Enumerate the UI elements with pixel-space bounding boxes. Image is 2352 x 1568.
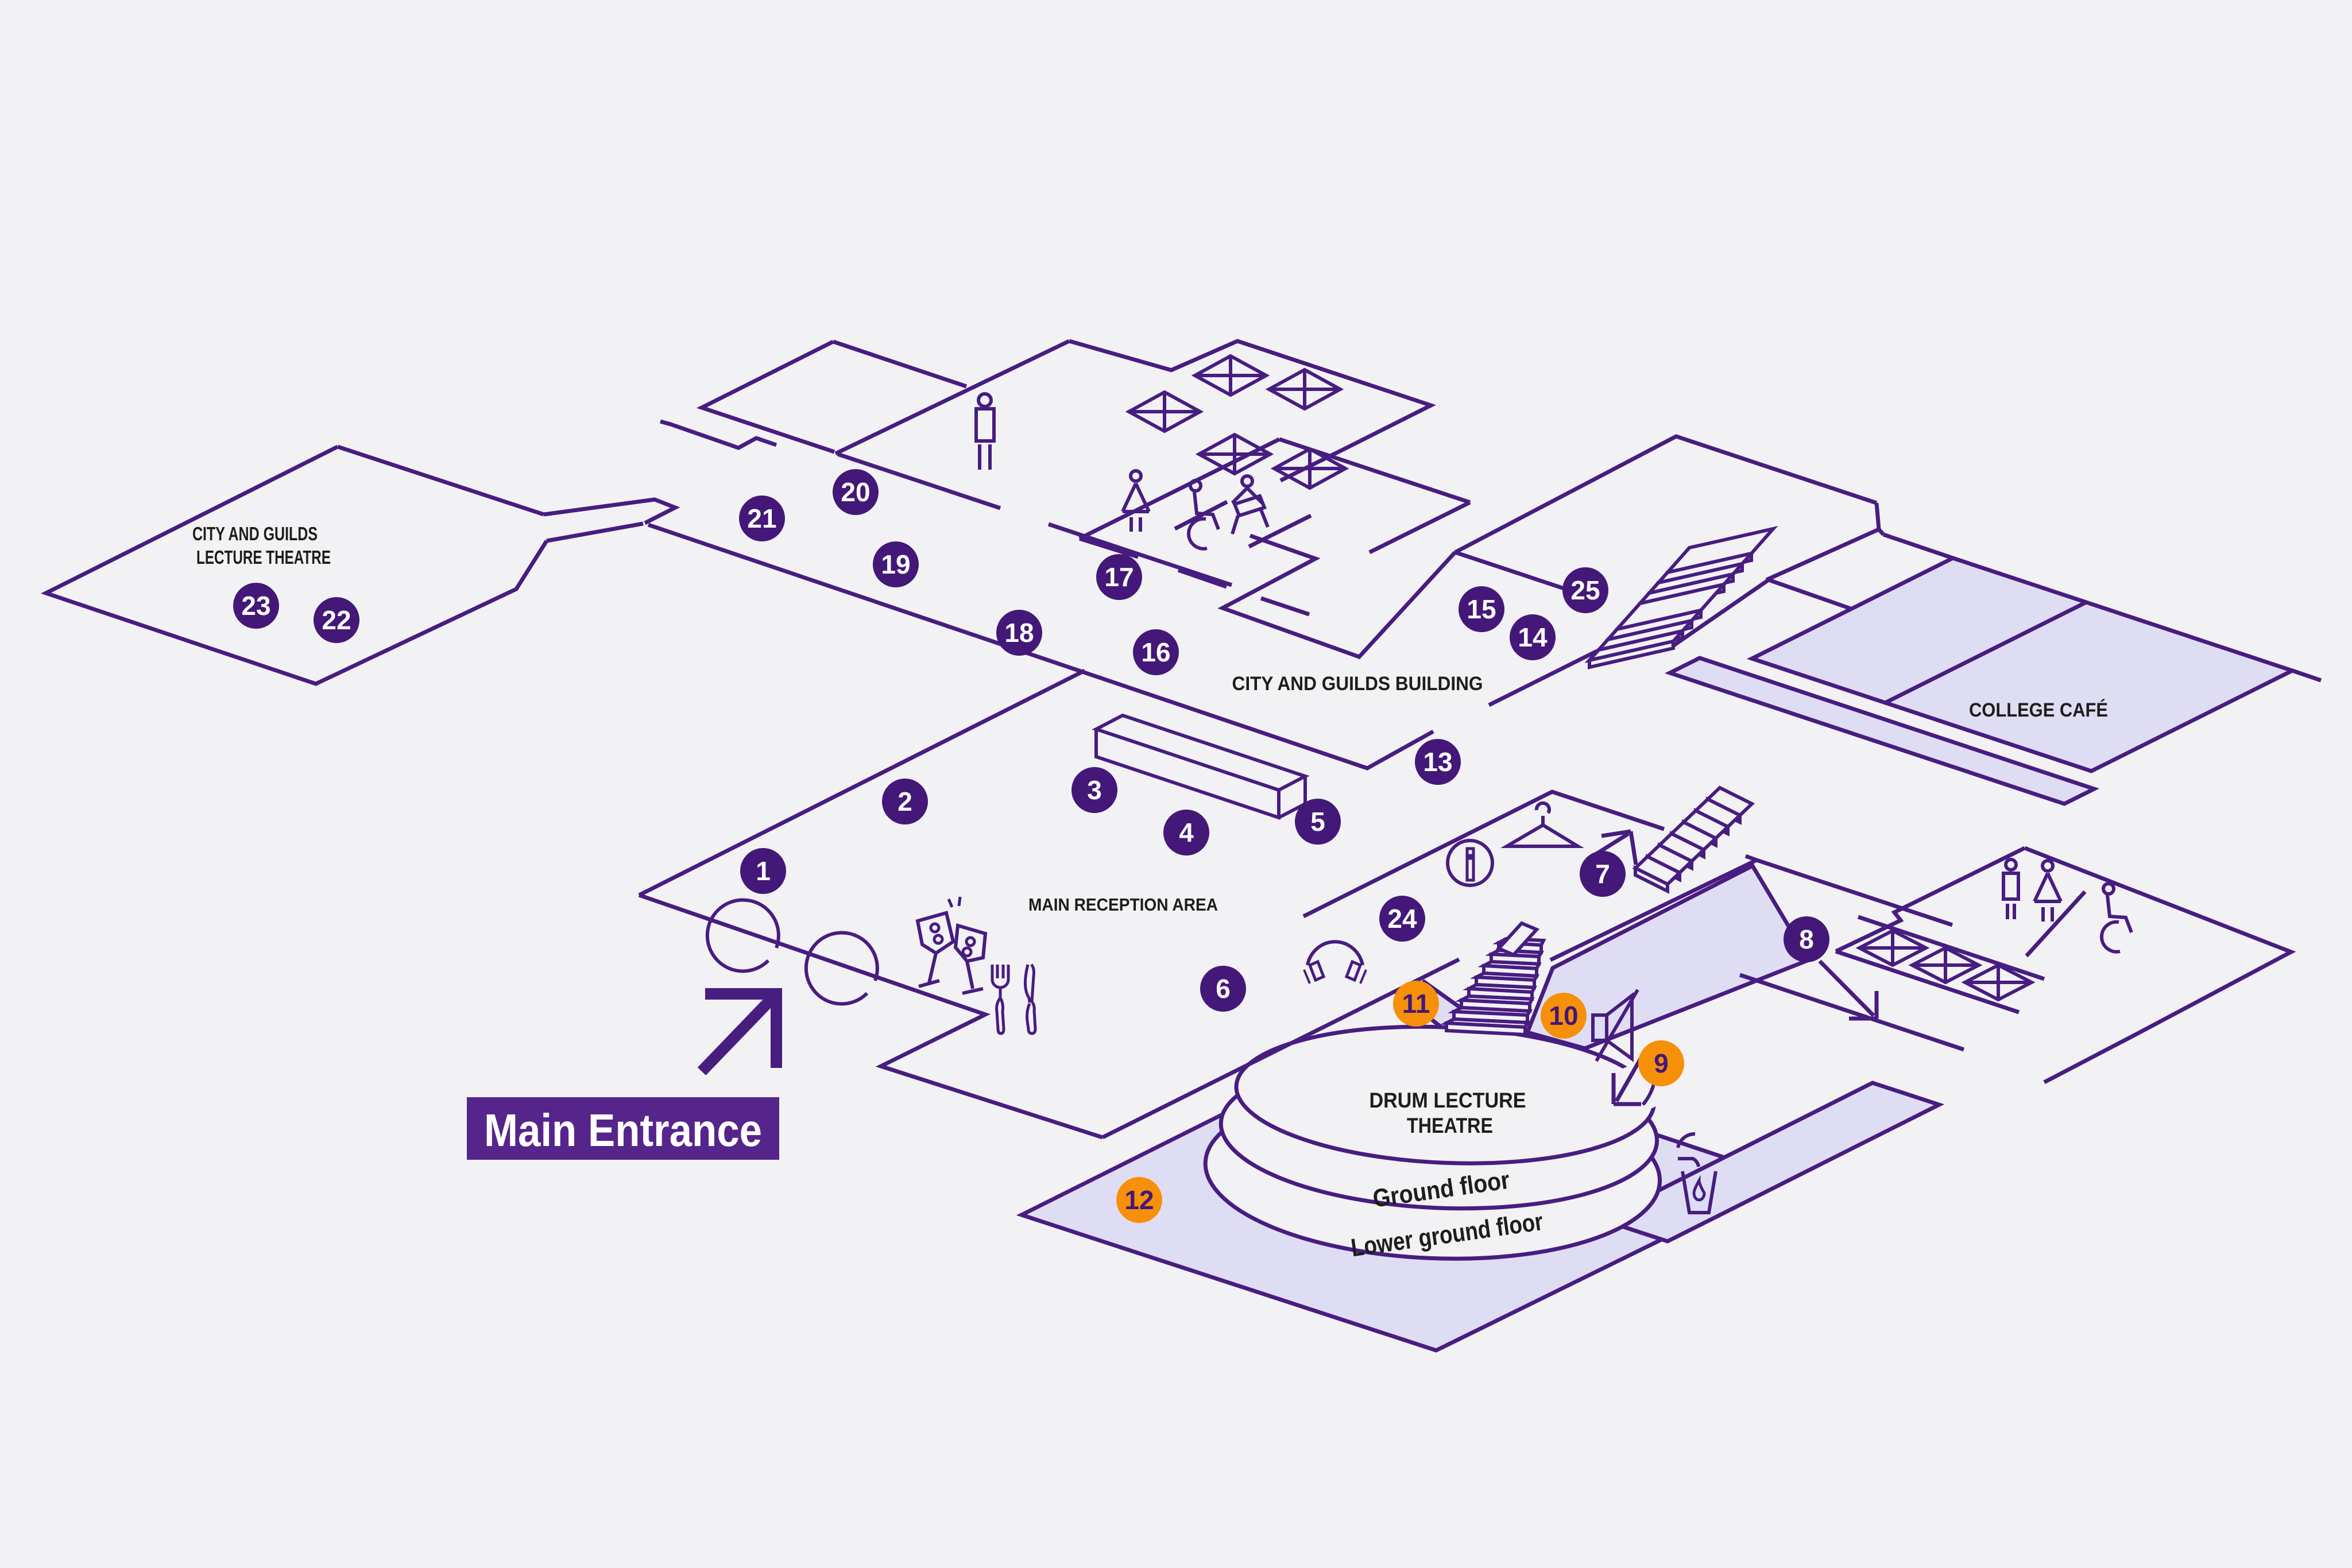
svg-text:THEATRE: THEATRE [1407,1114,1493,1137]
svg-text:19: 19 [881,549,910,579]
svg-text:4: 4 [1179,818,1194,847]
svg-text:15: 15 [1467,594,1496,624]
svg-text:18: 18 [1004,618,1034,648]
svg-text:DRUM LECTURE: DRUM LECTURE [1370,1089,1526,1112]
svg-text:1: 1 [756,856,771,886]
svg-text:7: 7 [1595,859,1610,889]
svg-text:14: 14 [1518,622,1548,652]
svg-text:25: 25 [1570,575,1600,605]
svg-text:24: 24 [1387,904,1417,934]
svg-text:6: 6 [1216,974,1231,1004]
svg-text:5: 5 [1310,807,1325,837]
svg-text:3: 3 [1087,775,1102,805]
svg-text:16: 16 [1141,637,1170,667]
svg-text:13: 13 [1423,747,1452,777]
svg-text:17: 17 [1104,562,1134,592]
svg-text:11: 11 [1402,989,1430,1019]
svg-text:COLLEGE CAFÉ: COLLEGE CAFÉ [1969,699,2108,721]
svg-text:20: 20 [841,477,870,507]
svg-text:Main Entrance: Main Entrance [484,1105,762,1156]
svg-text:10: 10 [1549,1001,1578,1031]
svg-text:22: 22 [322,605,351,635]
svg-text:LECTURE THEATRE: LECTURE THEATRE [196,547,331,568]
svg-text:MAIN RECEPTION AREA: MAIN RECEPTION AREA [1028,895,1218,915]
svg-text:CITY AND GUILDS BUILDING: CITY AND GUILDS BUILDING [1232,673,1483,695]
svg-text:8: 8 [1799,924,1814,954]
svg-text:CITY AND GUILDS: CITY AND GUILDS [192,523,318,544]
svg-text:12: 12 [1124,1185,1154,1215]
svg-text:9: 9 [1654,1048,1669,1078]
svg-text:21: 21 [747,504,776,533]
svg-text:23: 23 [241,591,270,621]
svg-text:2: 2 [898,787,912,816]
